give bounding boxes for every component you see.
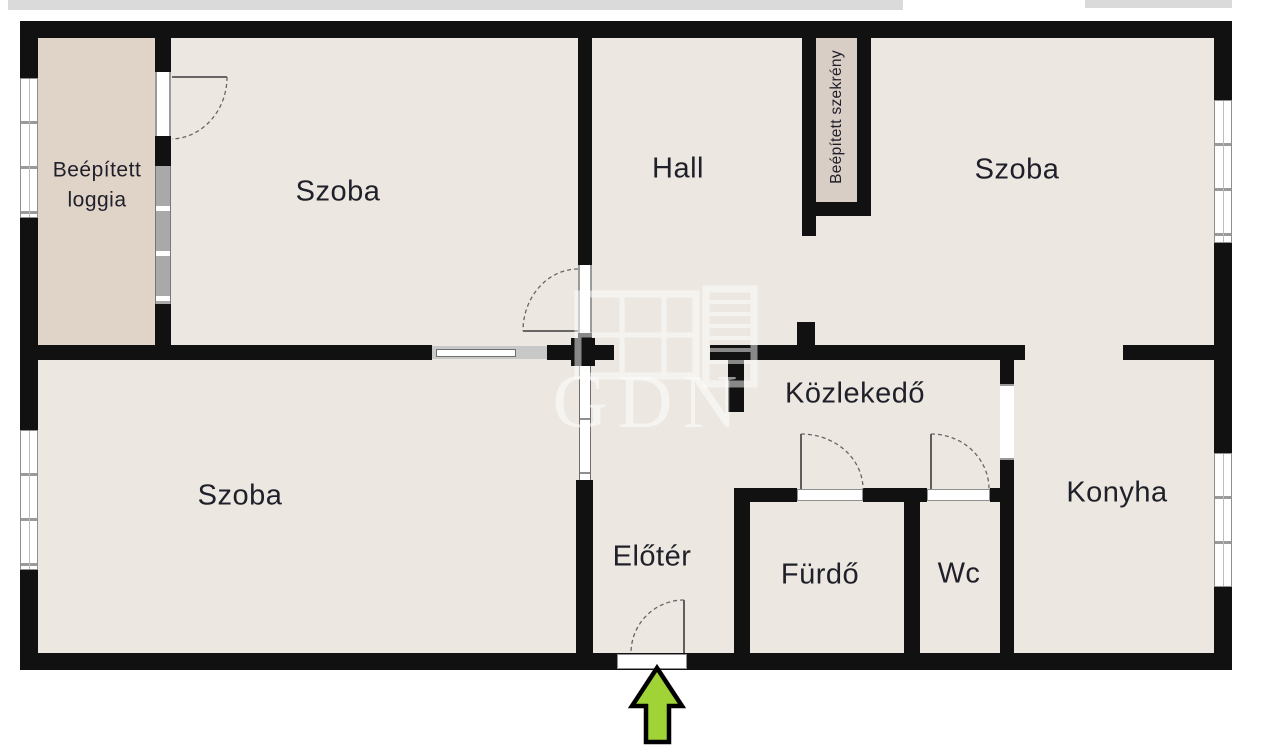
wall bbox=[728, 360, 744, 412]
wall bbox=[734, 488, 750, 653]
room-label-wc: Wc bbox=[938, 558, 981, 591]
artifact-strip-right bbox=[1085, 0, 1232, 8]
wall bbox=[155, 38, 171, 72]
wall bbox=[20, 21, 1232, 38]
door-sill bbox=[927, 489, 990, 501]
floor-plan-canvas: Beépített loggia Szoba Hall Beépített sz… bbox=[0, 0, 1280, 745]
entrance-door-sill bbox=[617, 654, 687, 669]
kitchen-doorway bbox=[1000, 384, 1014, 460]
wall bbox=[1123, 345, 1232, 360]
window bbox=[20, 430, 38, 570]
window bbox=[1214, 100, 1232, 243]
entrance-arrow bbox=[632, 668, 682, 742]
door-opening bbox=[155, 72, 171, 136]
wall bbox=[802, 202, 871, 216]
room-label-szekreny: Beépített szekrény bbox=[828, 50, 846, 184]
wall bbox=[857, 38, 871, 216]
glazed-partition bbox=[579, 366, 591, 480]
room-label-furdo: Fürdő bbox=[781, 559, 859, 592]
wall bbox=[595, 345, 614, 360]
wall bbox=[710, 345, 1025, 360]
room-label-eloter: Előtér bbox=[613, 541, 692, 574]
wall bbox=[1000, 360, 1014, 384]
room-label-loggia-line2: loggia bbox=[53, 186, 142, 216]
room-label-loggia: Beépített loggia bbox=[53, 156, 142, 217]
room-label-hall: Hall bbox=[652, 153, 704, 186]
room-label-szoba-top-right: Szoba bbox=[975, 154, 1060, 187]
artifact-strip-left bbox=[8, 0, 903, 10]
room-label-loggia-line1: Beépített bbox=[53, 156, 142, 186]
room-label-kozlekedo: Közlekedő bbox=[785, 378, 925, 411]
wall bbox=[576, 480, 593, 653]
sliding-door-panel bbox=[436, 349, 516, 357]
wall bbox=[990, 488, 1014, 502]
wall bbox=[904, 488, 920, 653]
door-sill bbox=[797, 489, 863, 501]
loggia-window bbox=[155, 166, 171, 304]
door-opening bbox=[578, 265, 592, 333]
wall bbox=[155, 136, 171, 166]
wall bbox=[547, 345, 572, 360]
room-label-konyha: Konyha bbox=[1066, 477, 1167, 510]
wall bbox=[734, 488, 797, 502]
window bbox=[1214, 453, 1232, 587]
window bbox=[20, 78, 38, 218]
wall bbox=[578, 38, 592, 265]
wall bbox=[797, 322, 815, 345]
room-label-szoba-top-left: Szoba bbox=[296, 176, 381, 209]
wall bbox=[571, 338, 595, 366]
wall bbox=[20, 345, 432, 360]
room-label-szoba-bottom-left: Szoba bbox=[198, 480, 283, 513]
